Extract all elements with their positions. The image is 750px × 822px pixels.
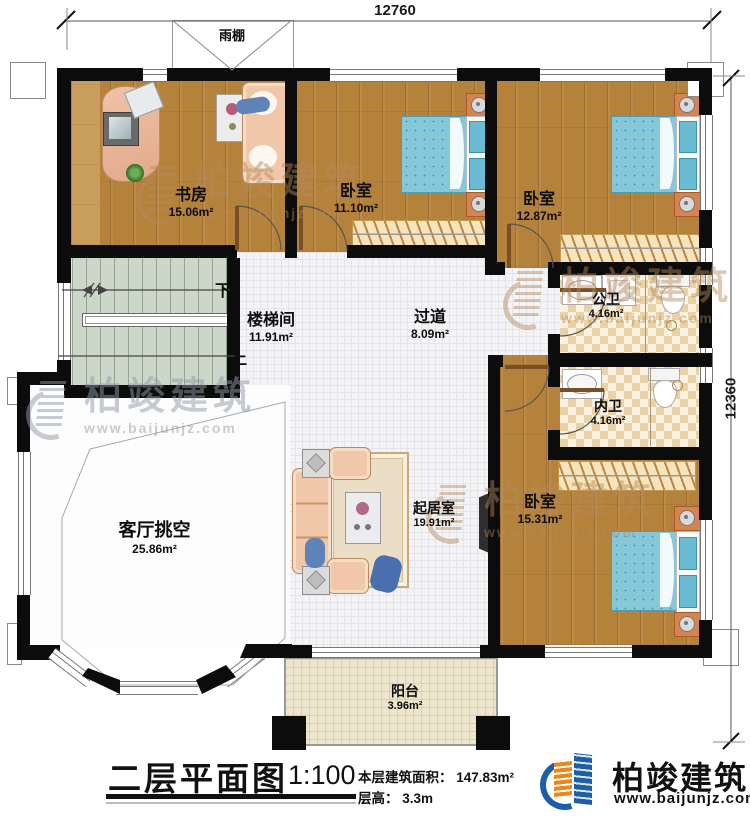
wall: [285, 68, 297, 252]
wall: [457, 68, 540, 81]
room-label-public-bath: 公卫4.16m²: [566, 291, 646, 321]
drawing-title: 二层平面图: [108, 752, 288, 800]
room-label-bedroom-right: 卧室12.87m²: [479, 190, 599, 224]
stair-landing-rail: [82, 313, 232, 327]
wall: [632, 645, 712, 658]
pillow: [679, 158, 697, 190]
drawing-scale: 1:100: [288, 760, 356, 791]
pillow: [679, 537, 697, 570]
lamp: [679, 510, 695, 526]
stairs-down-label: 下: [215, 277, 231, 301]
wardrobe: [560, 234, 700, 263]
wall: [485, 262, 505, 275]
window: [58, 283, 71, 360]
wardrobe: [558, 461, 696, 491]
wall: [285, 245, 297, 258]
window: [545, 647, 632, 658]
bed-bottom-sheet-fold: [660, 533, 674, 607]
wall: [485, 68, 497, 275]
room-label-balcony: 阳台3.96m²: [355, 683, 455, 713]
window: [48, 648, 93, 687]
wall: [17, 595, 30, 647]
wall: [548, 353, 712, 367]
lamp: [679, 196, 695, 212]
wall: [548, 355, 560, 367]
wall: [553, 262, 712, 275]
canopy-label: 雨棚: [172, 26, 292, 45]
lamp: [679, 97, 695, 113]
title-underline: [106, 794, 356, 799]
armchair: [329, 447, 371, 480]
bed-right-sheet-fold: [660, 118, 674, 189]
window: [18, 452, 31, 595]
room-label-study: 书房15.06m²: [131, 186, 251, 220]
floor-height-text: 层高： 3.3m: [358, 787, 433, 807]
window: [330, 69, 457, 82]
shower-divider: [650, 368, 651, 446]
floor-area-text: 本层建筑面积： 147.83m²: [358, 766, 514, 786]
dimension-right: 12360: [723, 369, 740, 429]
plant: [126, 164, 144, 182]
room-label-sitting-room: 起居室19.91m²: [394, 500, 474, 530]
lamp: [679, 616, 695, 632]
wall: [17, 372, 30, 452]
floor-plan: 12760 12360 雨棚 下 上: [0, 0, 750, 822]
study-cabinet-strip: [72, 81, 100, 245]
balcony-pillar: [476, 716, 510, 750]
wall: [347, 245, 497, 258]
corner-table: [302, 449, 330, 478]
dimension-top: 12760: [330, 2, 460, 19]
stairs-up-label: 上: [231, 345, 247, 369]
coffee-table: [345, 492, 381, 544]
room-label-stairwell: 楼梯间11.91m²: [216, 311, 326, 345]
pillow: [679, 575, 697, 608]
window: [143, 69, 167, 82]
bed-top-sheet-fold: [450, 118, 464, 189]
brand-website: www.baijunjz.com: [614, 790, 750, 807]
living-void-floor: [30, 385, 290, 647]
window: [220, 648, 265, 687]
window: [700, 115, 713, 210]
person-sitting: [305, 538, 325, 568]
wall: [699, 210, 712, 248]
room-label-living-void: 客厅挑空25.86m²: [92, 520, 217, 556]
window: [700, 520, 713, 620]
armchair: [327, 558, 369, 594]
wall: [57, 245, 237, 258]
wall: [488, 355, 503, 367]
corner-table: [302, 566, 330, 595]
wall: [167, 68, 330, 81]
wall: [64, 385, 240, 398]
wall: [548, 447, 705, 460]
brand-logo-icon: [540, 752, 604, 814]
balcony-sliding-door: [312, 647, 480, 658]
window: [116, 681, 198, 695]
floor-drain: [666, 320, 677, 331]
floor-drain: [672, 380, 683, 391]
bath-sink-counter: [562, 369, 602, 399]
title-underline-thin: [106, 802, 356, 804]
pillow: [679, 121, 697, 153]
wall: [699, 285, 712, 348]
chimney-outline: [10, 62, 46, 99]
wall: [480, 645, 545, 658]
room-label-bedroom-bottom: 卧室15.31m²: [490, 493, 590, 527]
room-label-hallway: 过道8.09m²: [390, 308, 470, 342]
wall: [699, 68, 712, 115]
balcony-pillar: [272, 716, 306, 750]
room-label-private-bath: 内卫4.16m²: [568, 398, 648, 428]
wall: [548, 262, 560, 288]
window: [540, 69, 665, 82]
room-label-bedroom-top: 卧室11.10m²: [296, 182, 416, 216]
